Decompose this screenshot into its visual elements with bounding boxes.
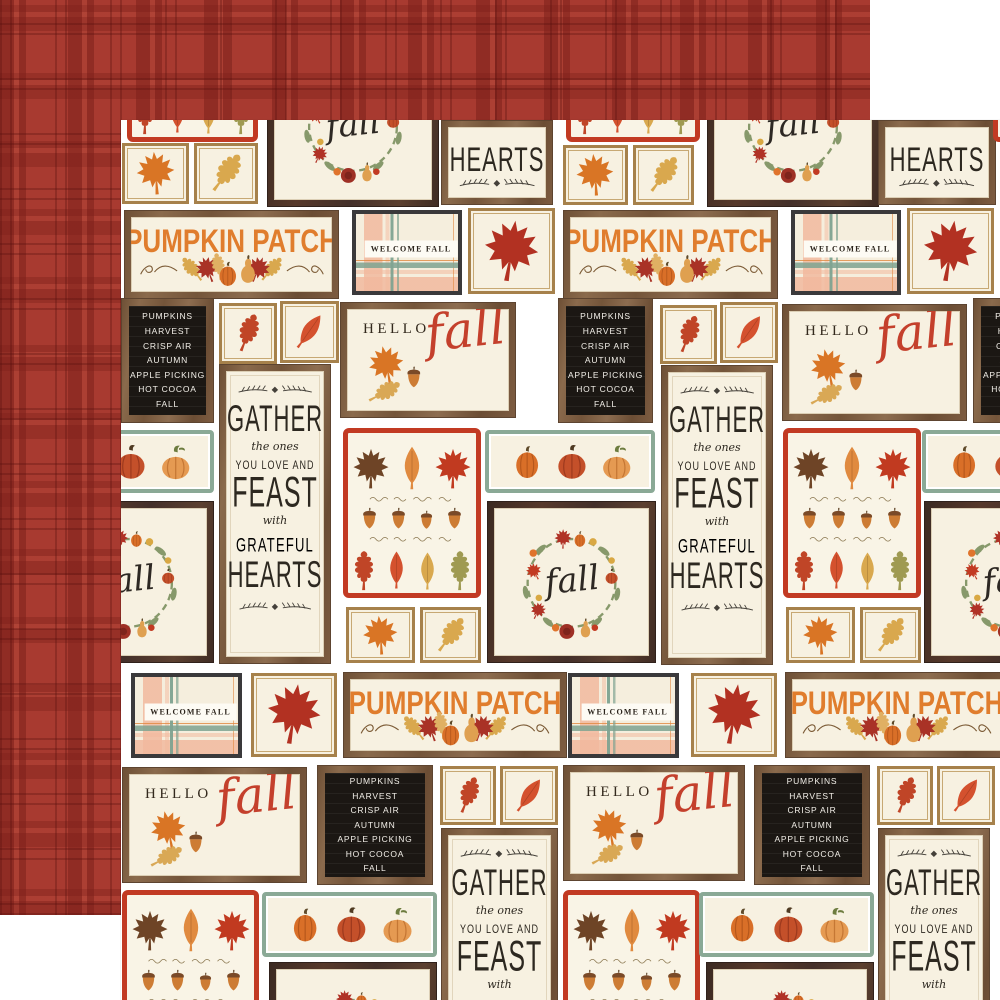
script-squiggle-icon xyxy=(802,596,902,598)
pointed-leaf-icon xyxy=(167,120,188,137)
welcome-fall-plaid-frame: WELCOME FALL xyxy=(352,210,462,295)
welcome-fall-plaid-frame: WELCOME FALL xyxy=(131,673,242,758)
maple-leaf-icon xyxy=(694,676,774,754)
hello-text: HELLO xyxy=(586,784,653,801)
oak-leaf-icon xyxy=(423,610,478,660)
letterboard-line: PUMPKINS xyxy=(580,309,631,324)
hearts-print: HEARTS xyxy=(448,127,546,198)
sampler-acorn-row xyxy=(139,969,243,993)
maple-leaf-icon xyxy=(572,909,610,953)
leaf-acorn-sampler-frame xyxy=(127,120,258,142)
pointed-leaf-icon xyxy=(400,445,424,491)
letterboard-line: PUMPKINS xyxy=(350,774,401,789)
acorn-icon xyxy=(197,972,214,993)
fall-wreath-print: fall xyxy=(274,120,432,200)
hearts-frame: HEARTS xyxy=(878,120,996,205)
fall-script-text: fall xyxy=(121,558,157,603)
hello-fall-print: HELLO fall xyxy=(129,774,300,876)
sampler-leaf-row xyxy=(133,120,253,137)
letterboard-line: APPLE PICKING xyxy=(568,368,643,383)
oak-leaf-icon xyxy=(663,308,714,361)
three-pumpkins-frame xyxy=(262,892,437,957)
sampler-acorn-row xyxy=(580,969,684,993)
script-squiggle-icon xyxy=(362,596,462,598)
laurel-sprig-icon xyxy=(679,601,755,614)
hello-fall-print: HELLO fall xyxy=(570,772,738,874)
letterboard-line: HARVEST xyxy=(583,324,629,339)
welcome-fall-label: WELCOME FALL xyxy=(581,704,674,721)
gather-feast-print: GATHER the ones YOU LOVE AND FEAST with … xyxy=(885,835,983,1000)
letterboard-line: AUTUMN xyxy=(585,353,626,368)
pumpkin-icon xyxy=(931,436,1000,487)
letterboard-line: CRISP AIR xyxy=(350,803,399,818)
oak-leaf-icon xyxy=(863,610,918,660)
hello-text: HELLO xyxy=(363,321,430,338)
welcome-fall-label: WELCOME FALL xyxy=(365,241,458,258)
acorn-icon xyxy=(360,507,379,531)
leaf-acorn-sampler-frame xyxy=(993,120,1000,142)
oak-leaf-icon xyxy=(880,769,930,822)
fall-wreath-print: fall xyxy=(276,969,430,1000)
pointed-leaf-icon xyxy=(198,120,219,137)
script-squiggle-icon xyxy=(802,534,902,543)
sampler-acorn-row xyxy=(360,507,464,531)
leaf-acorn-sampler-frame xyxy=(122,890,259,1000)
script-squiggle-icon xyxy=(145,140,239,142)
fall-wreath-frame: fall xyxy=(924,501,1000,663)
pumpkin-icon xyxy=(121,436,205,487)
letterboard-line: CRISP AIR xyxy=(787,803,836,818)
the-ones-text: the ones xyxy=(476,904,523,917)
pointed-leaf-icon xyxy=(940,769,992,822)
hello-text: HELLO xyxy=(805,323,872,340)
oak-leaf-icon xyxy=(669,120,693,137)
gather-feast-print: GATHER the ones YOU LOVE AND FEAST with … xyxy=(448,835,551,1000)
hearts-title: HEARTS xyxy=(890,140,985,180)
pointed-leaf-icon xyxy=(607,120,628,137)
letterboard-line: PUMPKINS xyxy=(995,309,1000,324)
gather-text: GATHER xyxy=(886,864,982,901)
oak-leaf-icon xyxy=(352,549,376,593)
maple-leaf-icon xyxy=(910,211,991,291)
laurel-sprig-icon xyxy=(458,847,540,860)
sampler-leaf-row xyxy=(792,445,912,491)
acorn-icon xyxy=(418,510,435,531)
hello-fall-print: HELLO fall xyxy=(347,309,509,411)
gather-feast-print: GATHER the ones YOU LOVE AND FEAST with … xyxy=(668,372,766,658)
letterboard-line: APPLE PICKING xyxy=(983,368,1000,383)
pumpkin-patch-banner: PUMPKIN PATCH xyxy=(350,679,560,751)
acorn-icon xyxy=(168,969,187,993)
letterboard-frame: PUMPKINS HARVEST CRISP AIR AUTUMN APPLE … xyxy=(754,765,870,885)
script-squiggle-icon xyxy=(802,494,902,503)
acorn-icon xyxy=(800,507,819,531)
hearts-frame: HEARTS xyxy=(441,120,553,205)
acorn-icon xyxy=(829,507,848,531)
letterboard-line: CRISP AIR xyxy=(143,339,192,354)
script-squiggle-icon xyxy=(582,956,681,965)
pumpkin-cluster-icon xyxy=(800,711,993,749)
feast-text: FEAST xyxy=(457,938,543,975)
pumpkin-patch-banner-frame: PUMPKIN PATCH xyxy=(343,672,567,758)
pointed-leaf-icon xyxy=(386,547,407,593)
orange-maple-leaf-frame xyxy=(786,607,855,663)
wreath-icon xyxy=(717,973,863,1000)
hearts-text: HEARTS xyxy=(670,557,765,594)
pointed-leaf-icon xyxy=(503,769,555,822)
script-squiggle-icon xyxy=(362,534,462,543)
laurel-sprig-icon xyxy=(236,383,314,396)
letterboard-line: HARVEST xyxy=(145,324,191,339)
wreath-icon xyxy=(280,973,426,1000)
letterboard-line: AUTUMN xyxy=(354,818,395,833)
fall-wreath-frame: fall xyxy=(706,962,874,1000)
letterboard-line: HOT COCOA xyxy=(783,847,842,862)
pumpkin-patch-banner: PUMPKIN PATCH xyxy=(792,679,1000,751)
pumpkin-icon xyxy=(271,898,428,950)
the-ones-text: the ones xyxy=(693,441,740,454)
maple-leaf-icon xyxy=(434,447,472,491)
sampler-leaf-row xyxy=(352,445,472,491)
hello-fall-frame: HELLO fall xyxy=(122,767,307,883)
letterboard-frame: PUMPKINS HARVEST CRISP AIR AUTUMN APPLE … xyxy=(973,298,1000,423)
hearts-title: HEARTS xyxy=(450,140,545,180)
fall-wreath-frame: fall xyxy=(487,501,656,663)
maple-leaf-icon xyxy=(213,909,251,953)
leaf-acorn-cluster-icon xyxy=(355,345,447,409)
leaf-acorn-sampler-frame xyxy=(563,890,700,1000)
pointed-leaf-icon xyxy=(179,907,203,953)
letterboard: PUMPKINS HARVEST CRISP AIR AUTUMN APPLE … xyxy=(762,773,862,877)
fall-wreath-frame: fall xyxy=(267,120,439,207)
maple-leaf-icon xyxy=(131,909,169,953)
red-pointed-leaf-frame xyxy=(720,302,778,363)
gather-feast-frame: GATHER the ones YOU LOVE AND FEAST with … xyxy=(661,365,773,665)
laurel-sprig-icon xyxy=(678,384,756,397)
pumpkin-icon xyxy=(708,898,865,950)
letterboard-line: AUTUMN xyxy=(147,353,188,368)
oak-leaf-icon xyxy=(792,549,816,593)
letterboard-line: FALL xyxy=(800,861,823,876)
letterboard-line: HARVEST xyxy=(352,789,398,804)
pumpkin-patch-banner-frame: PUMPKIN PATCH xyxy=(785,672,1000,758)
three-pumpkins-frame xyxy=(121,430,214,493)
three-pumpkins-frame xyxy=(922,430,1000,493)
acorn-icon xyxy=(139,969,158,993)
letterboard-frame: PUMPKINS HARVEST CRISP AIR AUTUMN APPLE … xyxy=(558,298,653,423)
tan-oak-leaf-frame xyxy=(420,607,481,663)
red-maple-leaf-frame xyxy=(691,673,777,757)
fall-wreath-print: fall xyxy=(713,969,867,1000)
script-squiggle-icon xyxy=(585,140,682,142)
the-ones-text: the ones xyxy=(910,904,957,917)
tan-oak-leaf-frame xyxy=(860,607,921,663)
oak-leaf-icon xyxy=(636,148,691,202)
maple-leaf-icon xyxy=(789,610,852,660)
pointed-leaf-icon xyxy=(638,120,659,137)
sampler-leaf-row xyxy=(352,547,472,593)
maple-leaf-icon xyxy=(471,211,552,291)
pumpkin-patch-banner-frame: PUMPKIN PATCH xyxy=(124,210,339,299)
fall-wreath-frame: fall xyxy=(269,962,437,1000)
red-oak-leaf-frame xyxy=(660,305,717,364)
gather-feast-print: GATHER the ones YOU LOVE AND FEAST with … xyxy=(226,371,324,657)
fall-script-text: fall xyxy=(981,558,1000,603)
script-squiggle-icon xyxy=(582,996,681,1000)
maple-leaf-icon xyxy=(566,148,625,202)
sampler-acorn-row xyxy=(800,507,904,531)
letterboard-line: PUMPKINS xyxy=(142,309,193,324)
maple-leaf-icon xyxy=(654,909,692,953)
welcome-fall-label: WELCOME FALL xyxy=(144,704,237,721)
front-sheet-collage: fall HEARTS xyxy=(121,120,1000,1000)
fall-wreath-frame: fall xyxy=(121,501,214,663)
laurel-sprig-icon xyxy=(895,847,973,860)
letterboard-line: HOT COCOA xyxy=(576,382,635,397)
leaf-acorn-sampler-frame xyxy=(783,428,921,598)
red-maple-leaf-frame xyxy=(907,208,994,294)
welcome-fall-label: WELCOME FALL xyxy=(804,241,897,258)
script-squiggle-icon xyxy=(141,996,240,1000)
letterboard-line: APPLE PICKING xyxy=(337,832,412,847)
acorn-icon xyxy=(638,972,655,993)
letterboard-line: HOT COCOA xyxy=(346,847,405,862)
letterboard-line: HOT COCOA xyxy=(138,382,197,397)
red-oak-leaf-frame xyxy=(440,766,496,825)
gather-text: GATHER xyxy=(451,864,547,901)
oak-leaf-icon xyxy=(443,769,493,822)
letterboard-frame: PUMPKINS HARVEST CRISP AIR AUTUMN APPLE … xyxy=(317,765,433,885)
red-pointed-leaf-frame xyxy=(500,766,558,825)
red-maple-leaf-frame xyxy=(251,673,337,757)
acorn-icon xyxy=(665,969,684,993)
red-pointed-leaf-frame xyxy=(937,766,995,825)
sampler-leaf-row xyxy=(792,547,912,593)
three-pumpkins-frame xyxy=(699,892,874,957)
three-pumpkins-frame xyxy=(485,430,655,493)
pumpkin-cluster-icon xyxy=(578,252,763,290)
maple-leaf-icon xyxy=(874,447,912,491)
acorn-icon xyxy=(224,969,243,993)
sampler-leaf-row xyxy=(572,907,692,953)
acorn-icon xyxy=(445,507,464,531)
hello-text: HELLO xyxy=(145,786,212,803)
acorn-icon xyxy=(580,969,599,993)
script-squiggle-icon xyxy=(362,494,462,503)
fall-script-text: fall xyxy=(542,558,600,603)
maple-leaf-icon xyxy=(349,610,412,660)
pointed-leaf-icon xyxy=(857,549,878,593)
gather-feast-frame: GATHER the ones YOU LOVE AND FEAST with … xyxy=(878,828,990,1000)
orange-maple-leaf-frame xyxy=(346,607,415,663)
letterboard: PUMPKINS HARVEST CRISP AIR AUTUMN APPLE … xyxy=(129,306,206,415)
hearts-print: HEARTS xyxy=(885,127,989,198)
maple-leaf-icon xyxy=(125,146,186,201)
fall-wreath-print: fall xyxy=(121,508,207,656)
letterboard-line: PUMPKINS xyxy=(787,774,838,789)
laurel-sprig-icon xyxy=(237,600,313,613)
oak-leaf-icon xyxy=(573,120,597,137)
pumpkin-icon xyxy=(494,436,646,487)
scrapbook-paper-product: fall HEARTS xyxy=(0,0,1000,1000)
plaid-background: WELCOME FALL xyxy=(795,214,897,291)
feast-text: FEAST xyxy=(891,938,977,975)
fall-wreath-print: fall xyxy=(494,508,649,656)
red-oak-leaf-frame xyxy=(877,766,933,825)
letterboard-line: HARVEST xyxy=(789,789,835,804)
fall-wreath-frame: fall xyxy=(707,120,879,207)
leaf-acorn-cluster-icon xyxy=(578,808,670,872)
letterboard-line: CRISP AIR xyxy=(581,339,630,354)
welcome-fall-plaid-frame: WELCOME FALL xyxy=(791,210,901,295)
acorn-icon xyxy=(389,507,408,531)
leaf-acorn-sampler-frame xyxy=(343,428,481,598)
oak-leaf-icon xyxy=(133,120,157,137)
gather-text: GATHER xyxy=(227,400,323,437)
leaf-acorn-cluster-icon xyxy=(797,348,889,412)
script-squiggle-icon xyxy=(141,956,240,965)
pointed-leaf-icon xyxy=(620,907,644,953)
plaid-background: WELCOME FALL xyxy=(356,214,458,291)
letterboard-frame: PUMPKINS HARVEST CRISP AIR AUTUMN APPLE … xyxy=(121,298,214,423)
sampler-leaf-row xyxy=(131,907,251,953)
letterboard-line: HOT COCOA xyxy=(991,382,1000,397)
oak-leaf-icon xyxy=(888,549,912,593)
the-ones-text: the ones xyxy=(251,440,298,453)
red-pointed-leaf-frame xyxy=(280,301,339,363)
plaid-background: WELCOME FALL xyxy=(572,677,675,754)
gather-text: GATHER xyxy=(669,401,765,438)
pumpkin-cluster-icon xyxy=(358,711,551,749)
pumpkin-patch-banner: PUMPKIN PATCH xyxy=(131,217,332,292)
pointed-leaf-icon xyxy=(283,304,336,360)
hearts-text: HEARTS xyxy=(228,556,323,593)
letterboard-line: APPLE PICKING xyxy=(130,368,205,383)
maple-leaf-icon xyxy=(792,447,830,491)
pointed-leaf-icon xyxy=(826,547,847,593)
letterboard-line: FALL xyxy=(363,861,386,876)
welcome-fall-plaid-frame: WELCOME FALL xyxy=(568,673,679,758)
hello-fall-frame: HELLO fall xyxy=(563,765,745,881)
acorn-icon xyxy=(609,969,628,993)
oak-leaf-icon xyxy=(229,120,253,137)
fall-wreath-print: fall xyxy=(714,120,872,200)
letterboard: PUMPKINS HARVEST CRISP AIR AUTUMN APPLE … xyxy=(325,773,425,877)
pumpkin-patch-banner: PUMPKIN PATCH xyxy=(570,217,771,292)
letterboard-line: CRISP AIR xyxy=(996,339,1000,354)
maple-leaf-icon xyxy=(254,676,334,754)
hello-fall-frame: HELLO fall xyxy=(782,304,967,421)
hello-fall-print: HELLO fall xyxy=(789,311,960,414)
sampler-leaf-row xyxy=(573,120,693,137)
pumpkin-cluster-icon xyxy=(139,252,324,290)
maple-leaf-icon xyxy=(352,447,390,491)
feast-text: FEAST xyxy=(232,474,318,511)
leaf-acorn-cluster-icon xyxy=(137,810,229,874)
leaf-acorn-sampler-frame xyxy=(566,120,700,142)
plaid-background: WELCOME FALL xyxy=(135,677,238,754)
oak-leaf-icon xyxy=(222,306,274,361)
oak-leaf-icon xyxy=(448,549,472,593)
tan-oak-leaf-frame xyxy=(633,145,694,205)
letterboard-line: APPLE PICKING xyxy=(774,832,849,847)
fall-wreath-print: fall xyxy=(931,508,1000,656)
gather-feast-frame: GATHER the ones YOU LOVE AND FEAST with … xyxy=(219,364,331,664)
letterboard: PUMPKINS HARVEST CRISP AIR AUTUMN APPLE … xyxy=(566,306,645,415)
letterboard-line: FALL xyxy=(594,397,617,412)
letterboard-line: AUTUMN xyxy=(791,818,832,833)
letterboard-line: FALL xyxy=(156,397,179,412)
orange-maple-leaf-frame xyxy=(122,143,189,204)
tan-oak-leaf-frame xyxy=(194,143,258,204)
pointed-leaf-icon xyxy=(840,445,864,491)
feast-text: FEAST xyxy=(674,475,760,512)
oak-leaf-icon xyxy=(197,146,255,201)
acorn-icon xyxy=(885,507,904,531)
red-maple-leaf-frame xyxy=(468,208,555,294)
red-oak-leaf-frame xyxy=(219,303,277,364)
letterboard: PUMPKINS HARVEST CRISP AIR AUTUMN APPLE … xyxy=(981,306,1000,415)
gather-feast-frame: GATHER the ones YOU LOVE AND FEAST with … xyxy=(441,828,558,1000)
orange-maple-leaf-frame xyxy=(563,145,628,205)
acorn-icon xyxy=(858,510,875,531)
pumpkin-patch-banner-frame: PUMPKIN PATCH xyxy=(563,210,778,299)
pointed-leaf-icon xyxy=(723,305,775,360)
pointed-leaf-icon xyxy=(417,549,438,593)
hello-fall-frame: HELLO fall xyxy=(340,302,516,418)
